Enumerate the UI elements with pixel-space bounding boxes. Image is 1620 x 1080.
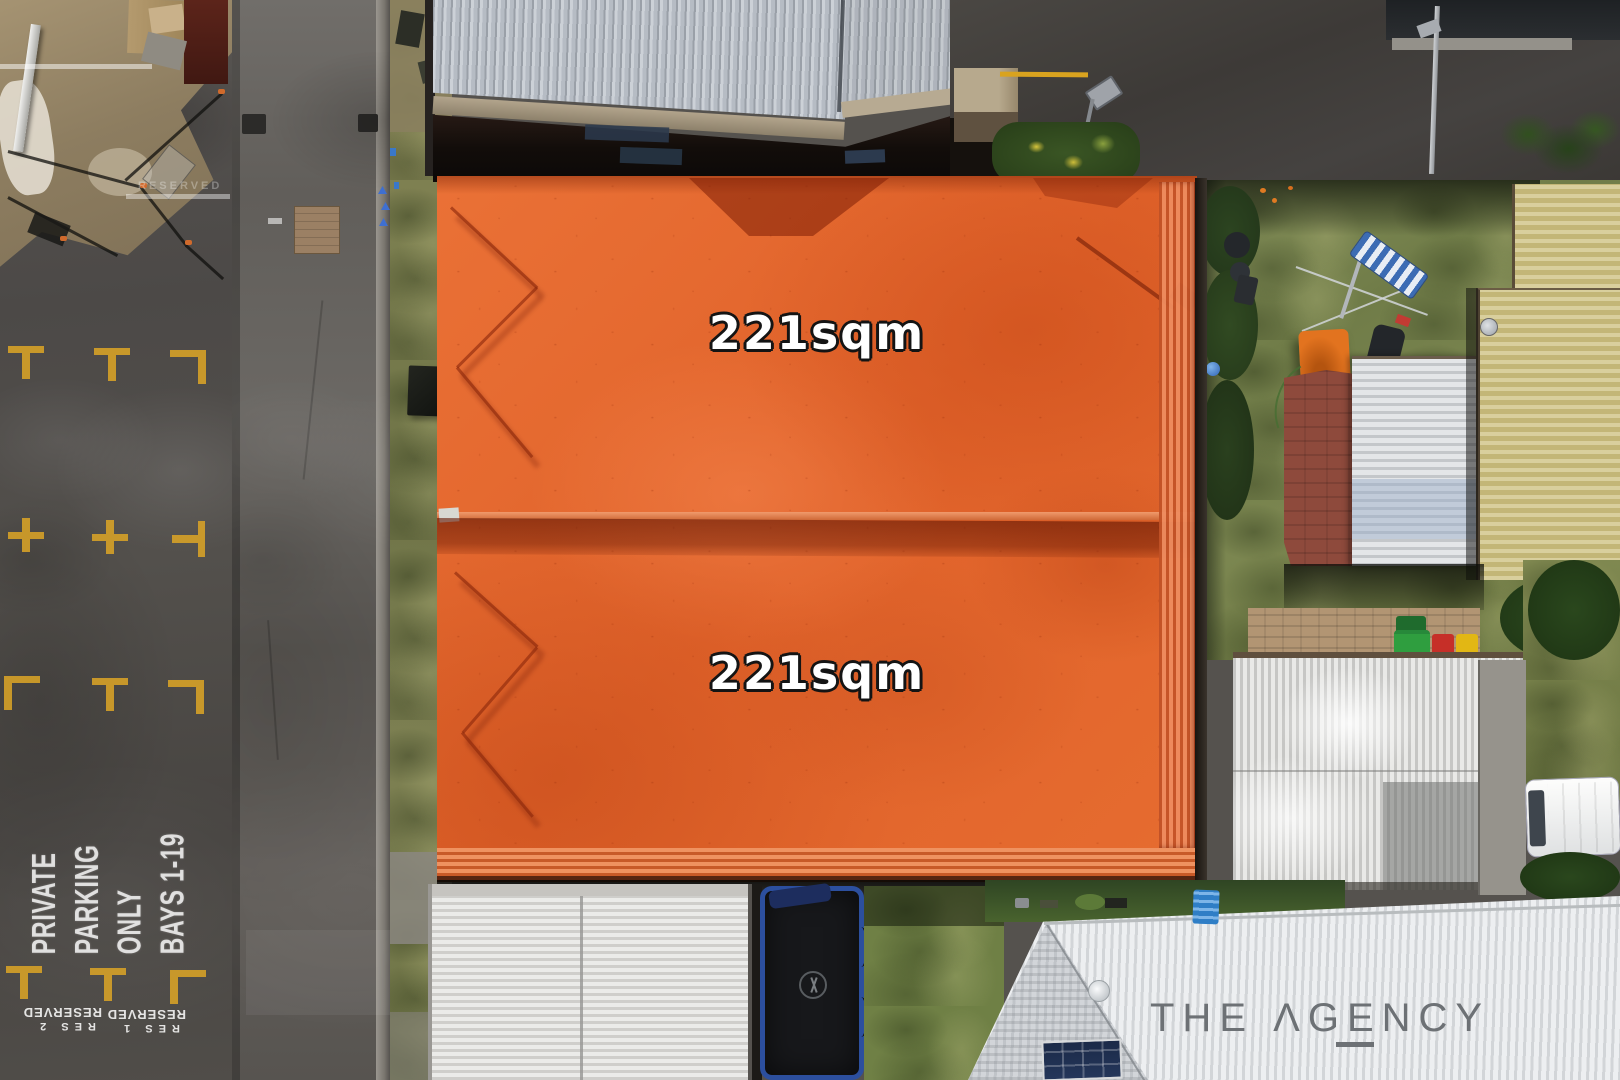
bay-line [0, 64, 152, 69]
red-brick-paving [1284, 370, 1354, 566]
lot-bottom-fence [437, 848, 1197, 882]
road [232, 0, 390, 1080]
private-parking-painted-sign: PRIVATE PARKING ONLY BAYS 1-19 [23, 776, 206, 955]
sign-line: PARKING [66, 776, 109, 955]
bottom-building-roof [428, 896, 752, 1080]
trampoline-logo [799, 971, 827, 999]
aerial-photo: RESERVED PRIVATE PARKING ONLY BAYS 1-19 … [0, 0, 1620, 1080]
bay-line [126, 194, 230, 199]
skylight-panel [620, 147, 683, 165]
logo-underline [1336, 1042, 1374, 1047]
hedge-bush [1200, 380, 1254, 520]
blue-ball [1206, 362, 1220, 376]
trampoline-net-wrap [768, 883, 832, 909]
bay-marker [168, 680, 204, 714]
garden-shed-roof [1352, 356, 1480, 566]
white-van [1525, 776, 1620, 857]
garden-plant [1075, 894, 1105, 910]
bay-marker [8, 518, 44, 552]
highlighted-lots-overlay: 221sqm 221sqm [437, 176, 1197, 882]
boundary-fence [1195, 178, 1207, 882]
reserved-bay-2-marking: RES 2 RESERVED [28, 986, 102, 1032]
warehouse-roof-right [841, 0, 955, 104]
survey-mark [394, 182, 399, 189]
road-stains [232, 0, 390, 1080]
roof-vent [1480, 318, 1498, 336]
van-windshield [1528, 790, 1546, 847]
bay-marker [92, 520, 128, 554]
roof-seam [580, 896, 583, 1080]
lot-area-label-1: 221sqm [437, 306, 1197, 360]
yellow-line-marking [1000, 72, 1088, 78]
roof-fascia [1233, 652, 1523, 658]
neighbour-garage-roof [1512, 184, 1620, 288]
skylight-panel [845, 149, 885, 163]
eave-shadow [1466, 288, 1478, 580]
hedge-bush [1200, 186, 1260, 276]
garden-clutter [1040, 900, 1058, 908]
whirlybird-vent [1088, 980, 1110, 1002]
orange-flower [1272, 198, 1277, 203]
warehouse-building [425, 0, 955, 182]
fence-shadow [864, 886, 1004, 926]
van-roof-ribs [1548, 781, 1618, 853]
neighbour-house-roof [1476, 288, 1620, 580]
skylight-panel [585, 125, 669, 143]
rear-carpark [950, 0, 1620, 182]
tree-canopy [1488, 96, 1620, 192]
tree-canopy [1528, 560, 1620, 660]
sign-line: BAYS 1-19 [152, 776, 195, 955]
hedge [992, 122, 1140, 184]
trampoline [760, 886, 864, 1080]
lot-area-label-2: 221sqm [437, 646, 1197, 700]
garden-pot [1015, 898, 1029, 908]
concrete-apron [1392, 38, 1572, 50]
solar-panels [1041, 1039, 1122, 1080]
agency-office-roof: THE ΛGENCY [968, 896, 1620, 1080]
fence-foot [185, 240, 192, 245]
reserved-text: RESERVED [112, 1007, 186, 1022]
brand-watermark: THE ΛGENCY [1150, 996, 1490, 1041]
bottom-building-fascia [428, 884, 752, 896]
reserved-text: RESERVED [28, 1005, 102, 1020]
fence-foot [218, 89, 225, 94]
shed-roof-blue-patch [1352, 479, 1480, 539]
bay-marker [94, 348, 130, 382]
survey-mark [390, 148, 396, 156]
blue-bench [1192, 890, 1219, 925]
bay-number: RES 1 [112, 1022, 186, 1034]
red-container [184, 0, 228, 84]
cardboard-sheet [148, 4, 185, 34]
bay-marker [4, 676, 40, 710]
fence-foot [60, 236, 67, 241]
concrete-path [1478, 660, 1526, 895]
outdoor-table [1224, 232, 1250, 258]
bay-marker [171, 521, 205, 557]
bottom-white-building [428, 884, 752, 1080]
shed-shadow [1284, 564, 1484, 610]
bay-marker [8, 346, 44, 380]
orange-flower [1288, 186, 1293, 190]
bay-marker [170, 350, 206, 384]
dividing-fence-shadow [437, 518, 1197, 558]
bay-marker [92, 678, 128, 712]
private-parking-area: RESERVED PRIVATE PARKING ONLY BAYS 1-19 … [0, 0, 232, 1080]
lot-right-fence [1159, 182, 1197, 848]
reserved-bay-1-marking: RES 1 RESERVED [112, 988, 186, 1034]
sign-line: ONLY [109, 776, 152, 955]
sign-line: PRIVATE [23, 776, 66, 955]
orange-flower [1260, 188, 1266, 193]
door-mat [1105, 898, 1127, 908]
bay-number: RES 2 [28, 1020, 102, 1032]
faded-reserved-marking: RESERVED [138, 180, 222, 192]
roof-left-edge [428, 884, 432, 1080]
tree-canopy [1520, 852, 1620, 902]
